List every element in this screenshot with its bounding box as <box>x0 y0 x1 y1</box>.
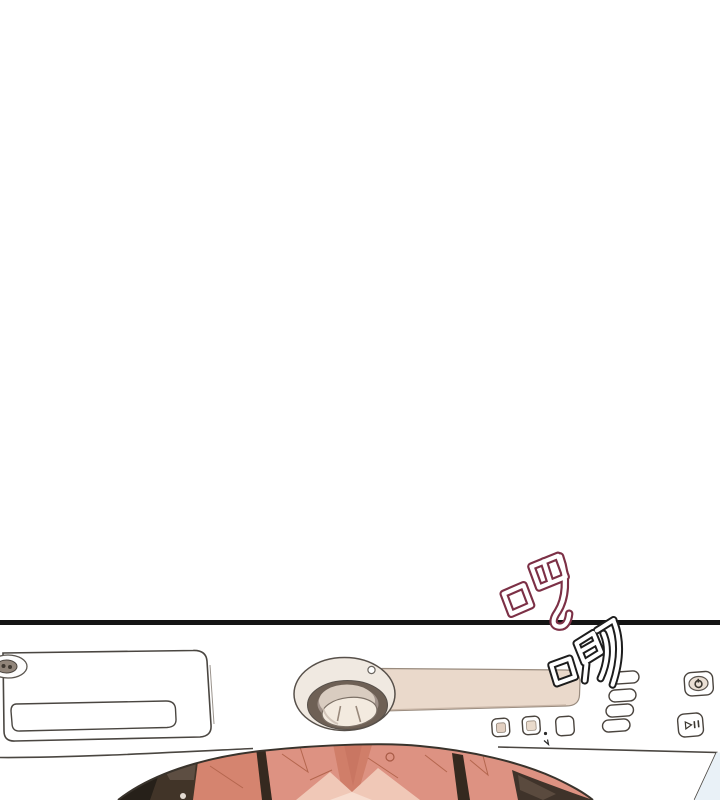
detergent-drawer <box>3 650 214 741</box>
program-knob <box>294 658 395 731</box>
play-pause-button <box>677 712 704 737</box>
pill-button-2 <box>609 689 637 703</box>
small-button-2 <box>522 716 541 735</box>
tiny-dot-mark <box>544 732 547 735</box>
small-option-buttons <box>491 716 574 745</box>
small-button-3 <box>555 716 574 736</box>
option-pill-buttons <box>602 671 639 733</box>
rim-highlight <box>180 793 186 799</box>
tiny-arrow-mark <box>544 740 549 745</box>
panel-strip <box>382 669 580 712</box>
webtoon-panel-page[interactable] <box>0 0 720 800</box>
power-button <box>684 671 714 696</box>
small-button-1 <box>491 718 510 737</box>
pill-button-1 <box>612 671 640 685</box>
washing-machine-illustration <box>0 620 720 800</box>
background-right-corner <box>695 753 720 800</box>
knob-indicator-dot <box>368 666 375 673</box>
drawer-handle <box>11 701 176 731</box>
pill-button-3 <box>606 704 634 718</box>
pill-button-4 <box>602 719 630 733</box>
panel-border-line <box>0 620 720 625</box>
